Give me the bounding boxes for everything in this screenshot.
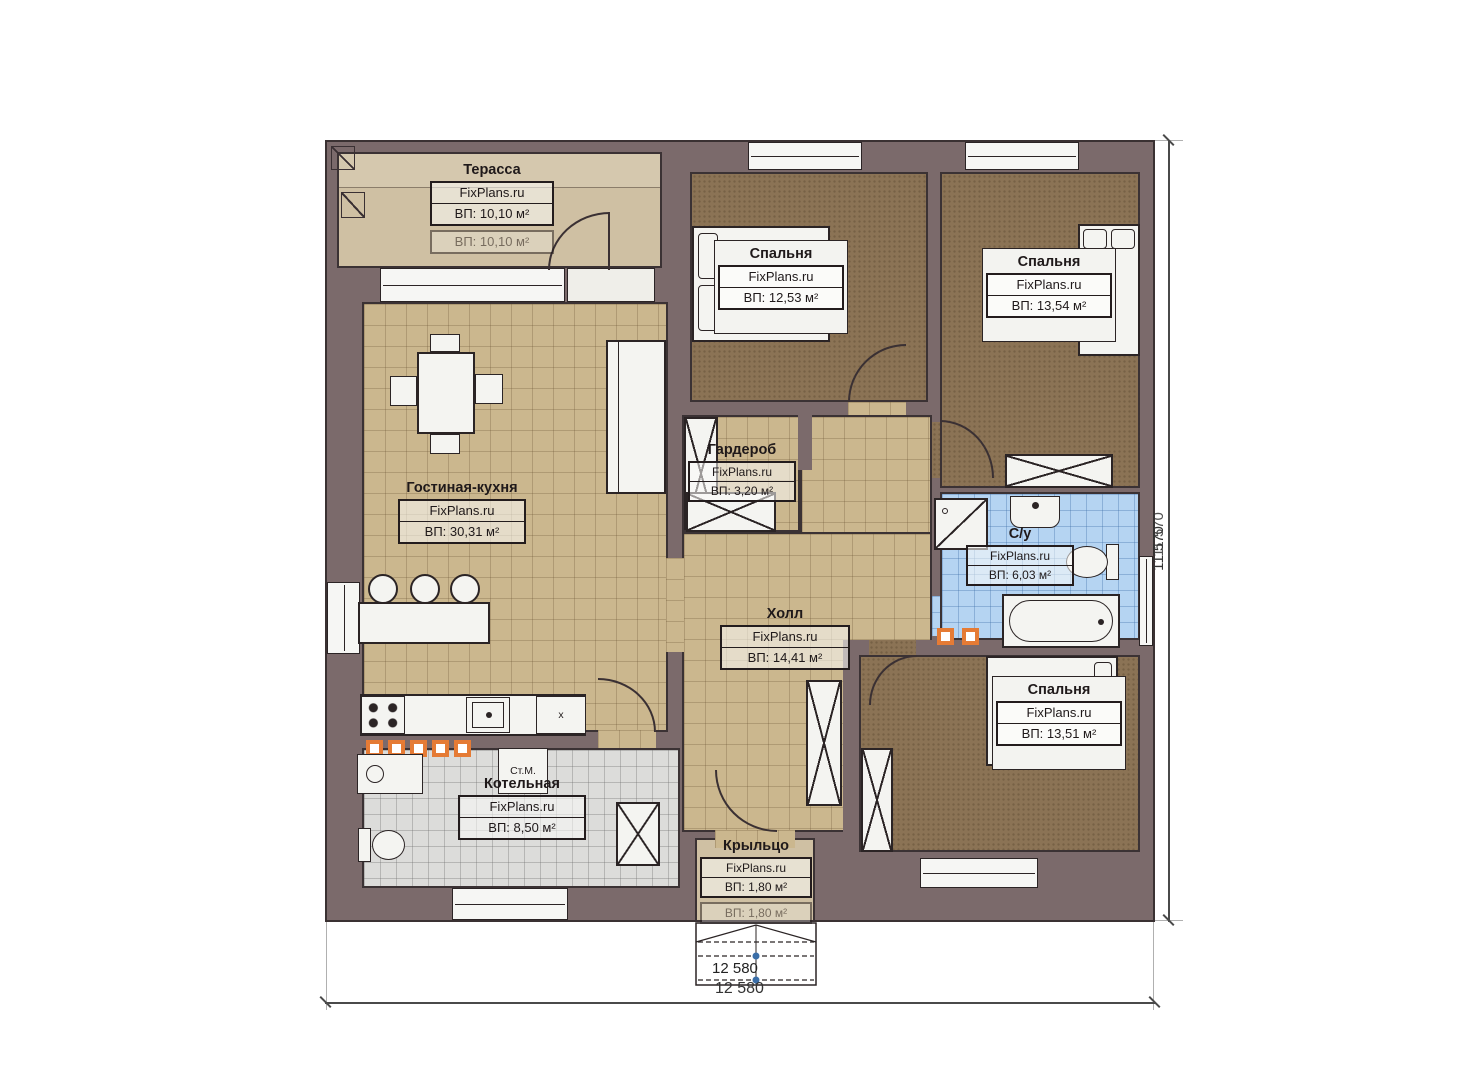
passage-living-hall (666, 558, 684, 652)
room-title: Терасса (430, 162, 554, 179)
door-leaf-terrace (608, 212, 610, 270)
room-area: ВП: 13,51 м² (998, 723, 1120, 744)
dimension-line-right (1168, 140, 1170, 922)
watermark-text: FixPlans.ru (998, 703, 1120, 723)
sink-drain (486, 712, 492, 718)
watermark-text: FixPlans.ru (968, 547, 1072, 565)
window-bedroom1-top (748, 142, 862, 170)
room-hall-floor-upper (800, 415, 932, 538)
room-area: ВП: 1,80 м² (702, 877, 810, 896)
room-area: ВП: 14,41 м² (722, 647, 848, 668)
radiator-marker (454, 740, 471, 757)
sofa-backrest (618, 342, 619, 492)
radiator-marker (432, 740, 449, 757)
bar-stool (368, 574, 398, 604)
room-hall-label: Холл FixPlans.ru ВП: 14,41 м² (720, 606, 850, 670)
cabinet-knob (366, 765, 384, 783)
room-area: ВП: 3,20 м² (690, 481, 794, 500)
room-wardrobe-label: Гардероб FixPlans.ru ВП: 3,20 м² (688, 442, 796, 502)
watermark-text: FixPlans.ru (988, 275, 1110, 295)
wardrobe-closet (1005, 454, 1113, 488)
wash-basin (1010, 496, 1060, 528)
pillow (1083, 229, 1107, 249)
radiator-marker (937, 628, 954, 645)
cabinet-x: x (536, 696, 586, 734)
door-opening-bedroom1 (848, 402, 906, 415)
bar-stool (450, 574, 480, 604)
room-title: Крыльцо (700, 838, 812, 855)
room-area: ВП: 13,54 м² (988, 295, 1110, 316)
dimension-line-bottom (325, 1002, 1155, 1004)
room-title: С/у (966, 526, 1074, 543)
room-bedroom1-label: Спальня FixPlans.ru ВП: 12,53 м² (718, 246, 844, 310)
bathtub-drain (1098, 619, 1104, 625)
door-opening-terrace (567, 268, 655, 302)
room-area: ВП: 30,31 м² (400, 521, 524, 542)
watermark-text: FixPlans.ru (690, 463, 794, 481)
room-title: Гостиная-кухня (398, 480, 526, 497)
toilet-tank (358, 828, 371, 862)
terrace-post-marker (341, 192, 365, 218)
cabinet-x-mark: x (558, 709, 563, 721)
wall-bedroom3-top-b (916, 640, 932, 655)
window-bedroom2-top (965, 142, 1079, 170)
room-title: Котельная (458, 776, 586, 793)
toilet-bowl (372, 830, 405, 860)
basin-faucet (1032, 502, 1039, 509)
watermark-text: FixPlans.ru (702, 859, 810, 877)
room-terrace-label: Терасса FixPlans.ru ВП: 10,10 м² ВП: 10,… (430, 162, 554, 254)
window-terrace-living (380, 268, 565, 302)
room-title: Холл (720, 606, 850, 623)
watermark-text: FixPlans.ru (400, 501, 524, 521)
room-area: ВП: 6,03 м² (968, 565, 1072, 584)
window-living-left (327, 582, 360, 654)
wardrobe-closet (861, 748, 893, 852)
extension-line (326, 922, 327, 1010)
chair (430, 334, 460, 352)
room-porch-label: Крыльцо FixPlans.ru ВП: 1,80 м² ВП: 1,80… (700, 838, 812, 924)
bar-counter (358, 602, 490, 644)
bathtub (1002, 594, 1120, 648)
dimension-bottom-text: 12 580 (715, 980, 764, 998)
room-title: Спальня (996, 682, 1122, 699)
sofa (606, 340, 666, 494)
room-title: Гардероб (688, 442, 796, 459)
dimension-steps-text: 12 580 (712, 960, 758, 977)
door-opening-boiler (598, 730, 656, 748)
extension-line (1153, 922, 1154, 1010)
room-title: Спальня (718, 246, 844, 263)
room-area-faded: ВП: 10,10 м² (432, 232, 552, 252)
pillow (1111, 229, 1135, 249)
watermark-text: FixPlans.ru (432, 183, 552, 203)
wall-wardrobe-hall-stub (798, 415, 812, 470)
room-boiler-label: Котельная FixPlans.ru ВП: 8,50 м² (458, 776, 586, 840)
door-opening-bedroom3 (869, 640, 916, 655)
radiator-marker (962, 628, 979, 645)
room-living-label: Гостиная-кухня FixPlans.ru ВП: 30,31 м² (398, 480, 526, 544)
chair (430, 434, 460, 454)
chair (475, 374, 503, 404)
room-area: ВП: 12,53 м² (720, 287, 842, 308)
room-area: ВП: 10,10 м² (432, 203, 552, 224)
wardrobe-closet (806, 680, 842, 806)
window-bedroom3-bottom (920, 858, 1038, 888)
room-bathroom-label: С/у FixPlans.ru ВП: 6,03 м² (966, 526, 1074, 586)
dimension-right-text-overlap: 11 570 (1150, 512, 1167, 557)
door-opening-bedroom2 (932, 422, 940, 478)
chair (390, 376, 417, 406)
terrace-post-marker (331, 146, 355, 170)
room-title: Спальня (986, 254, 1112, 271)
floor-plan: x Ст.М. Терасса FixPlans.ru ВП: 10,10 м² (0, 0, 1473, 1080)
kitchen-sink (466, 697, 510, 733)
room-bedroom2-label: Спальня FixPlans.ru ВП: 13,54 м² (986, 254, 1112, 318)
watermark-text: FixPlans.ru (720, 267, 842, 287)
window-boiler-bottom (452, 888, 568, 920)
room-area-faded: ВП: 1,80 м² (702, 904, 810, 922)
watermark-text: FixPlans.ru (460, 797, 584, 817)
watermark-text: FixPlans.ru (722, 627, 848, 647)
shower-drain (942, 508, 948, 514)
room-area: ВП: 8,50 м² (460, 817, 584, 838)
dining-table (417, 352, 475, 434)
stove (361, 696, 405, 734)
boiler-unit (616, 802, 660, 866)
room-bedroom3-label: Спальня FixPlans.ru ВП: 13,51 м² (996, 682, 1122, 746)
wall-bedroom3-top-a (859, 640, 869, 655)
bar-stool (410, 574, 440, 604)
boiler-cabinet (357, 754, 423, 794)
